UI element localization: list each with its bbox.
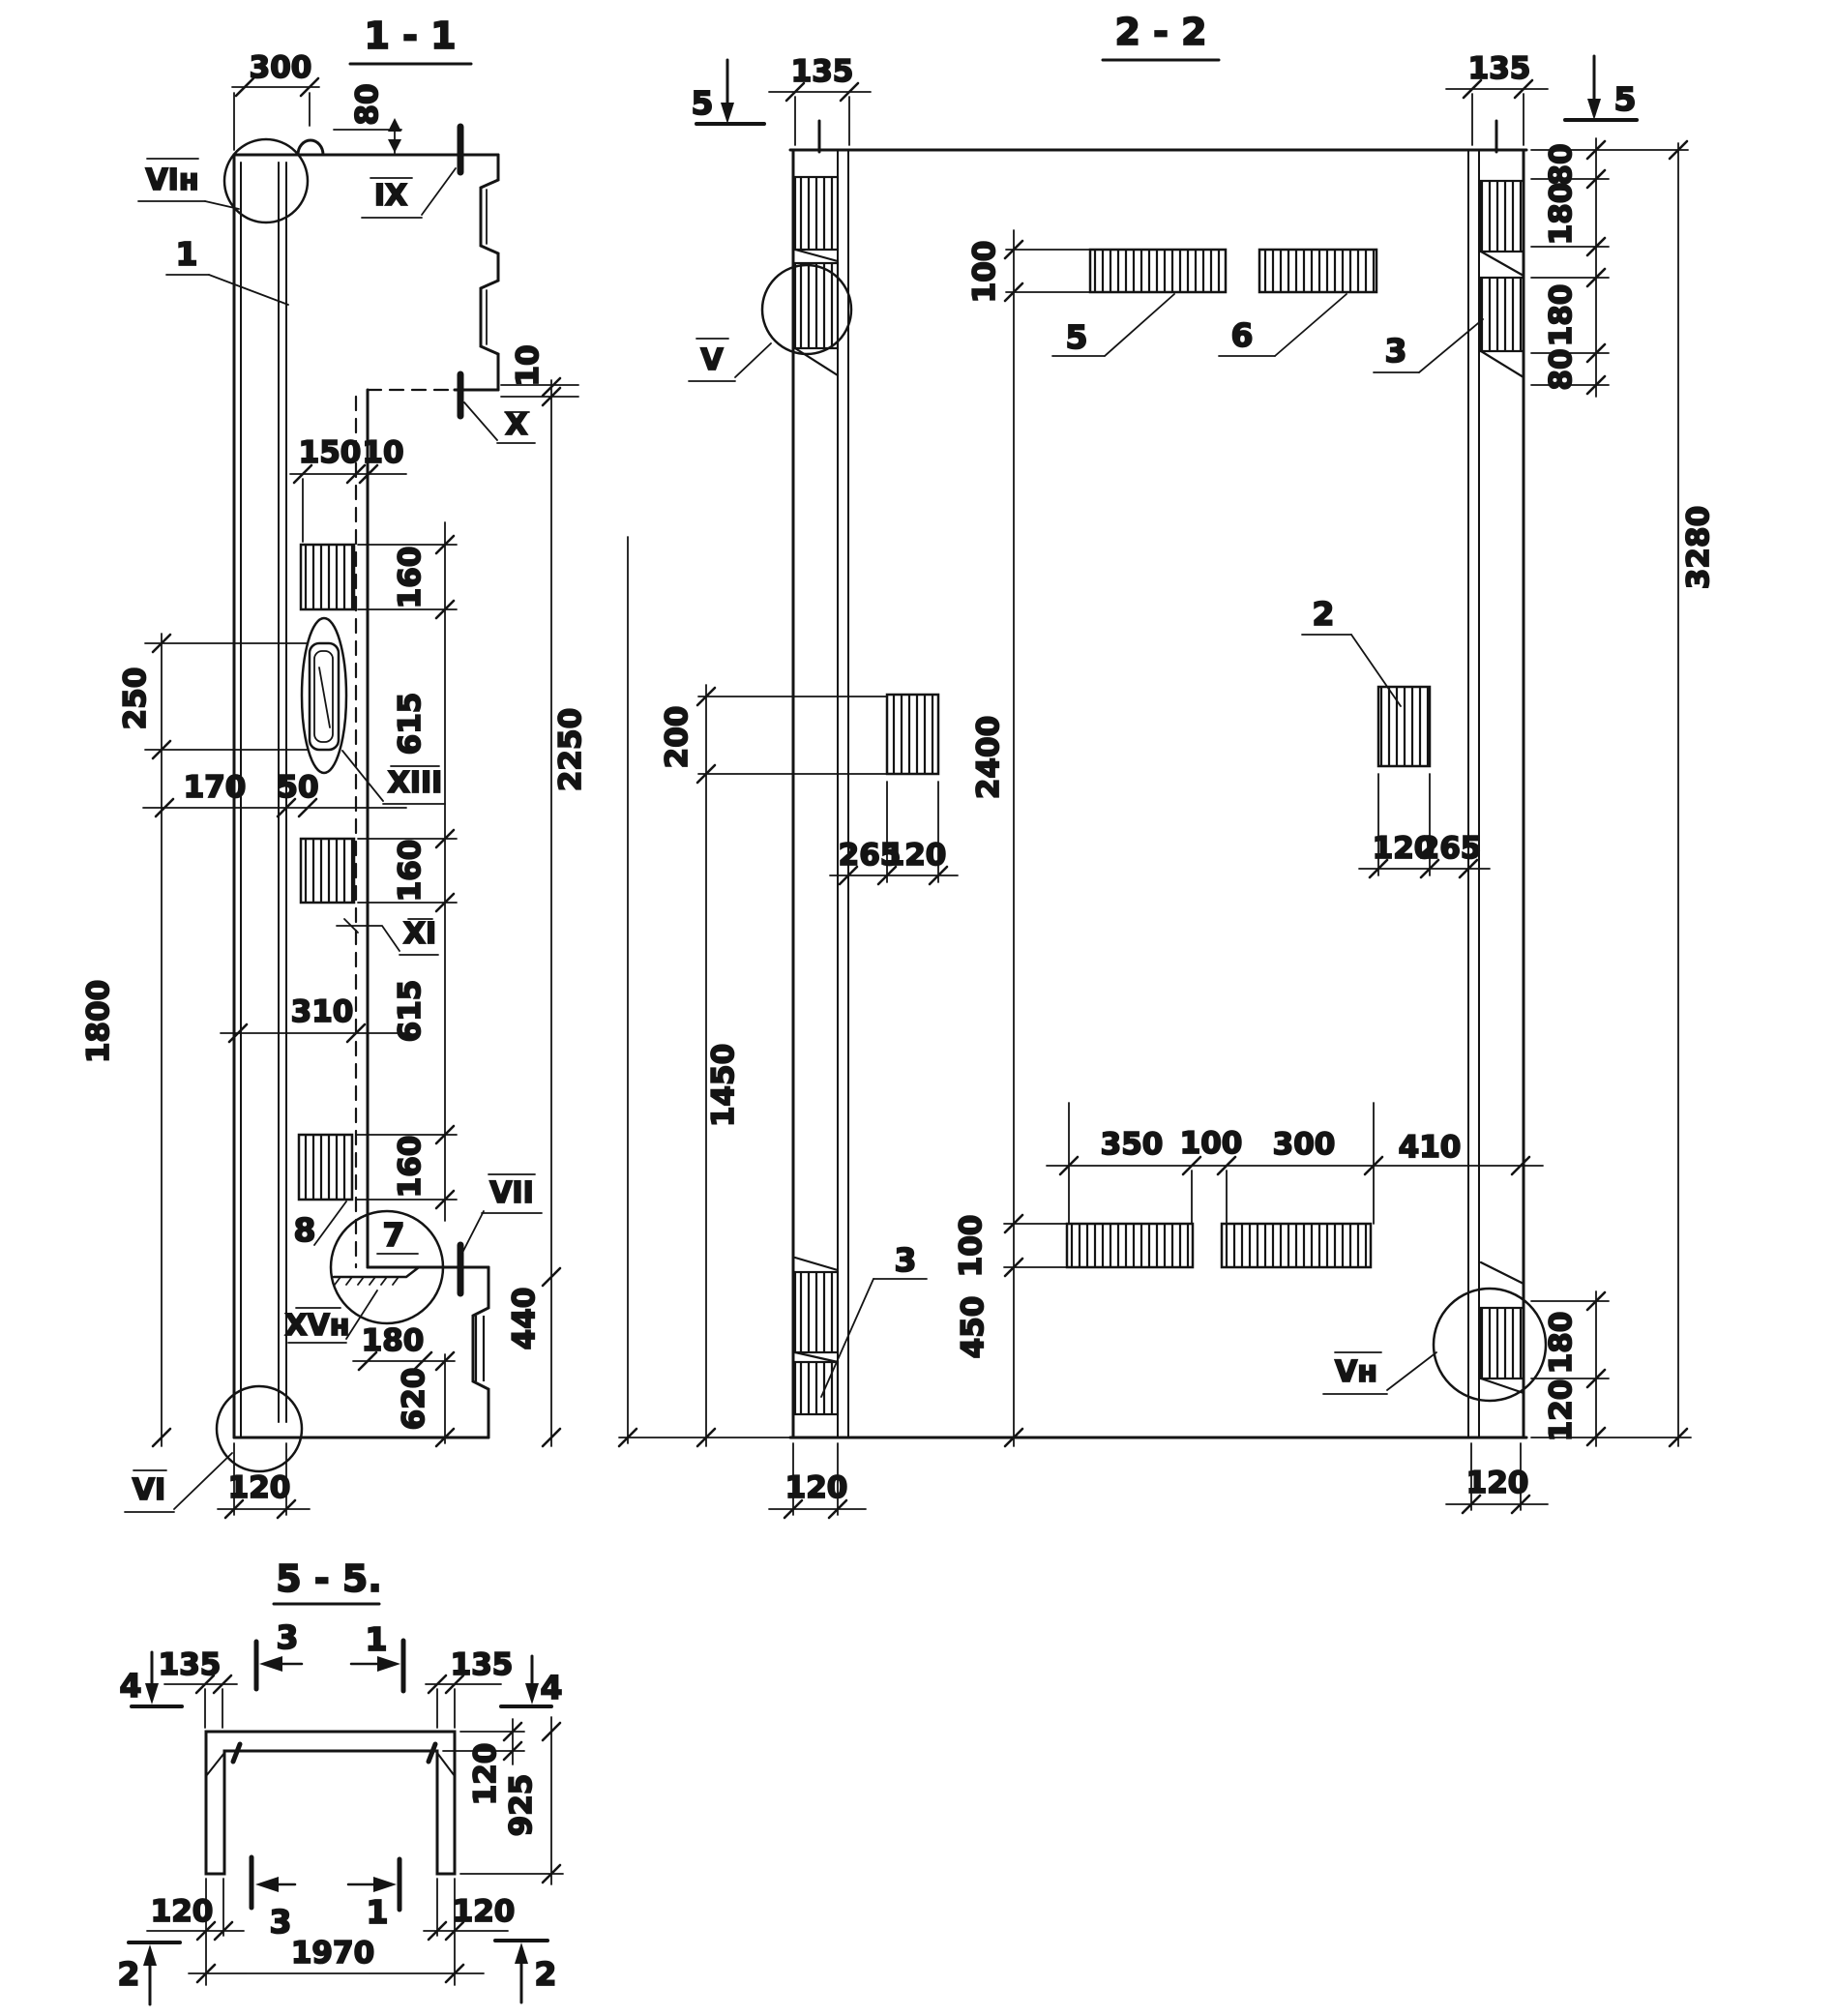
cut-marker-5-right-label: 5 — [1614, 80, 1637, 118]
dim-620: 620 — [397, 1368, 431, 1431]
label-section-IX: IX — [374, 179, 407, 213]
detail-circle-VIn — [224, 139, 308, 222]
label-section-XI: XI — [403, 917, 436, 951]
leader-pos-5: 5 — [1066, 318, 1088, 356]
section-2-2-view: 2 - 2 — [619, 11, 1716, 1518]
dim-925: 925 — [504, 1774, 539, 1837]
dim-135-right-55: 135 — [451, 1647, 514, 1682]
dim-100-top: 100 — [967, 241, 1002, 304]
label-section-X: X — [505, 408, 527, 442]
leader-pos-8: 8 — [294, 1211, 316, 1249]
label-section-V: V — [700, 343, 724, 377]
labels-1-1: VIн 1 IX X XIII XI VII XVн VI 7 8 — [125, 159, 542, 1512]
leader-pos-6: 6 — [1231, 316, 1254, 354]
cut-marker-3-bottom: 3 — [252, 1857, 295, 1941]
dim-180-top2: 180 — [1544, 284, 1579, 347]
cut-marker-1-top: 1 — [351, 1620, 403, 1691]
cut-marker-5-left: 5 — [692, 60, 764, 124]
dim-120-bottom-right: 120 — [1466, 1466, 1529, 1500]
dim-10-a: 10 — [362, 435, 403, 470]
dim-2400: 2400 — [971, 716, 1006, 799]
channel-outline-5-5 — [206, 1732, 455, 1874]
dim-3280: 3280 — [1681, 506, 1716, 589]
dim-160-3: 160 — [393, 1136, 428, 1199]
label-section-VIn: VIн — [145, 163, 198, 197]
lifting-loop — [298, 140, 323, 155]
cut-marker-2-right-label: 2 — [535, 1955, 557, 1993]
dim-120-bottom-left: 120 — [785, 1470, 848, 1505]
dim-50: 50 — [277, 770, 318, 805]
drawing-canvas: 1 - 1 — [0, 0, 1835, 2016]
leader-pos-7: 7 — [383, 1216, 405, 1254]
dim-135-right: 135 — [1468, 51, 1531, 86]
label-section-Vn: Vн — [1335, 1355, 1377, 1389]
dim-135-left: 135 — [791, 54, 854, 89]
dim-100-bottom: 100 — [954, 1215, 989, 1278]
dim-120-left: 120 — [884, 838, 947, 873]
dim-615-1: 615 — [393, 693, 428, 756]
cut-marker-1-bottom: 1 — [348, 1859, 400, 1931]
dim-250: 250 — [118, 667, 153, 730]
section-1-1-title: 1 - 1 — [364, 15, 456, 57]
dim-180-foot: 180 — [362, 1323, 425, 1358]
cut-marker-4-left-label: 4 — [120, 1667, 142, 1705]
dim-440: 440 — [507, 1288, 542, 1350]
dim-150: 150 — [299, 435, 362, 470]
dim-1450: 1450 — [706, 1044, 741, 1127]
dim-300-top: 300 — [250, 50, 312, 85]
dim-450: 450 — [956, 1296, 991, 1359]
cut-marker-3-bottom-label: 3 — [270, 1903, 292, 1941]
dim-2250: 2250 — [553, 708, 588, 791]
cut-marker-2-left-label: 2 — [118, 1955, 140, 1993]
dim-160-1: 160 — [393, 547, 428, 609]
embedded-parts-2-2 — [887, 250, 1430, 1267]
dim-180-bottom: 180 — [1544, 1312, 1579, 1375]
dims-1-1: 300 80 150 10 160 615 160 615 160 10 225… — [81, 50, 588, 1518]
dim-135-left-55: 135 — [159, 1647, 222, 1682]
dim-80: 80 — [350, 83, 385, 125]
drawing-sheet: 1 - 1 — [0, 0, 1835, 2016]
dim-160-2: 160 — [393, 840, 428, 903]
label-section-XIII: XIII — [388, 766, 443, 800]
section-1-1-view: 1 - 1 — [81, 15, 588, 1518]
dim-170: 170 — [184, 770, 247, 805]
cut-marker-5-right: 5 — [1565, 56, 1637, 120]
section-5-5-title: 5 - 5. — [276, 1557, 382, 1600]
detail-circle-VI — [217, 1386, 302, 1471]
cut-marker-4-right-label: 4 — [541, 1669, 563, 1706]
dim-10-b: 10 — [511, 344, 546, 386]
dim-1800: 1800 — [81, 980, 116, 1063]
cut-marker-5-left-label: 5 — [692, 84, 714, 122]
dim-120-stack: 120 — [1544, 1379, 1579, 1442]
cut-marker-1-top-label: 1 — [366, 1620, 388, 1658]
section-2-2-title: 2 - 2 — [1114, 11, 1206, 53]
dim-310: 310 — [291, 994, 354, 1029]
leader-pos-3-bottom: 3 — [895, 1241, 917, 1279]
cut-marker-3-top: 3 — [256, 1618, 302, 1689]
dim-350: 350 — [1101, 1127, 1164, 1162]
leader-pos-1: 1 — [176, 235, 198, 273]
step-detail-7 — [334, 1267, 419, 1285]
label-section-VII: VII — [489, 1176, 534, 1210]
dim-200: 200 — [660, 706, 695, 769]
cut-marker-3-top-label: 3 — [277, 1618, 299, 1656]
cut-marker-2-right: 2 — [495, 1941, 556, 2002]
leader-pos-2: 2 — [1313, 595, 1335, 633]
dim-100-mid: 100 — [1180, 1126, 1243, 1161]
section-5-5-view: 5 - 5. 3 1 4 4 3 — [118, 1557, 563, 2004]
cut-marker-2-left: 2 — [118, 1942, 180, 2004]
leader-pos-3-top: 3 — [1385, 332, 1407, 370]
dim-300-bottom: 300 — [1273, 1127, 1336, 1162]
label-section-XVn: XVн — [284, 1309, 349, 1343]
dim-180-top1: 180 — [1544, 183, 1579, 246]
dim-120-bottom: 120 — [228, 1470, 291, 1505]
dim-120-flange: 120 — [468, 1743, 503, 1806]
dims-5-5: 135 135 120 925 120 120 1970 — [147, 1647, 563, 1985]
dim-120-bottom-right-55: 120 — [453, 1894, 516, 1929]
dim-265-right: 265 — [1419, 831, 1482, 866]
dim-120-bottom-left-55: 120 — [151, 1894, 214, 1929]
cut-marker-1-bottom-label: 1 — [367, 1893, 389, 1931]
dim-80-top2: 80 — [1544, 348, 1579, 390]
dim-410: 410 — [1399, 1130, 1462, 1165]
dim-80-top: 80 — [1544, 143, 1579, 185]
label-section-VI: VI — [133, 1473, 165, 1507]
dim-1970: 1970 — [291, 1936, 374, 1971]
